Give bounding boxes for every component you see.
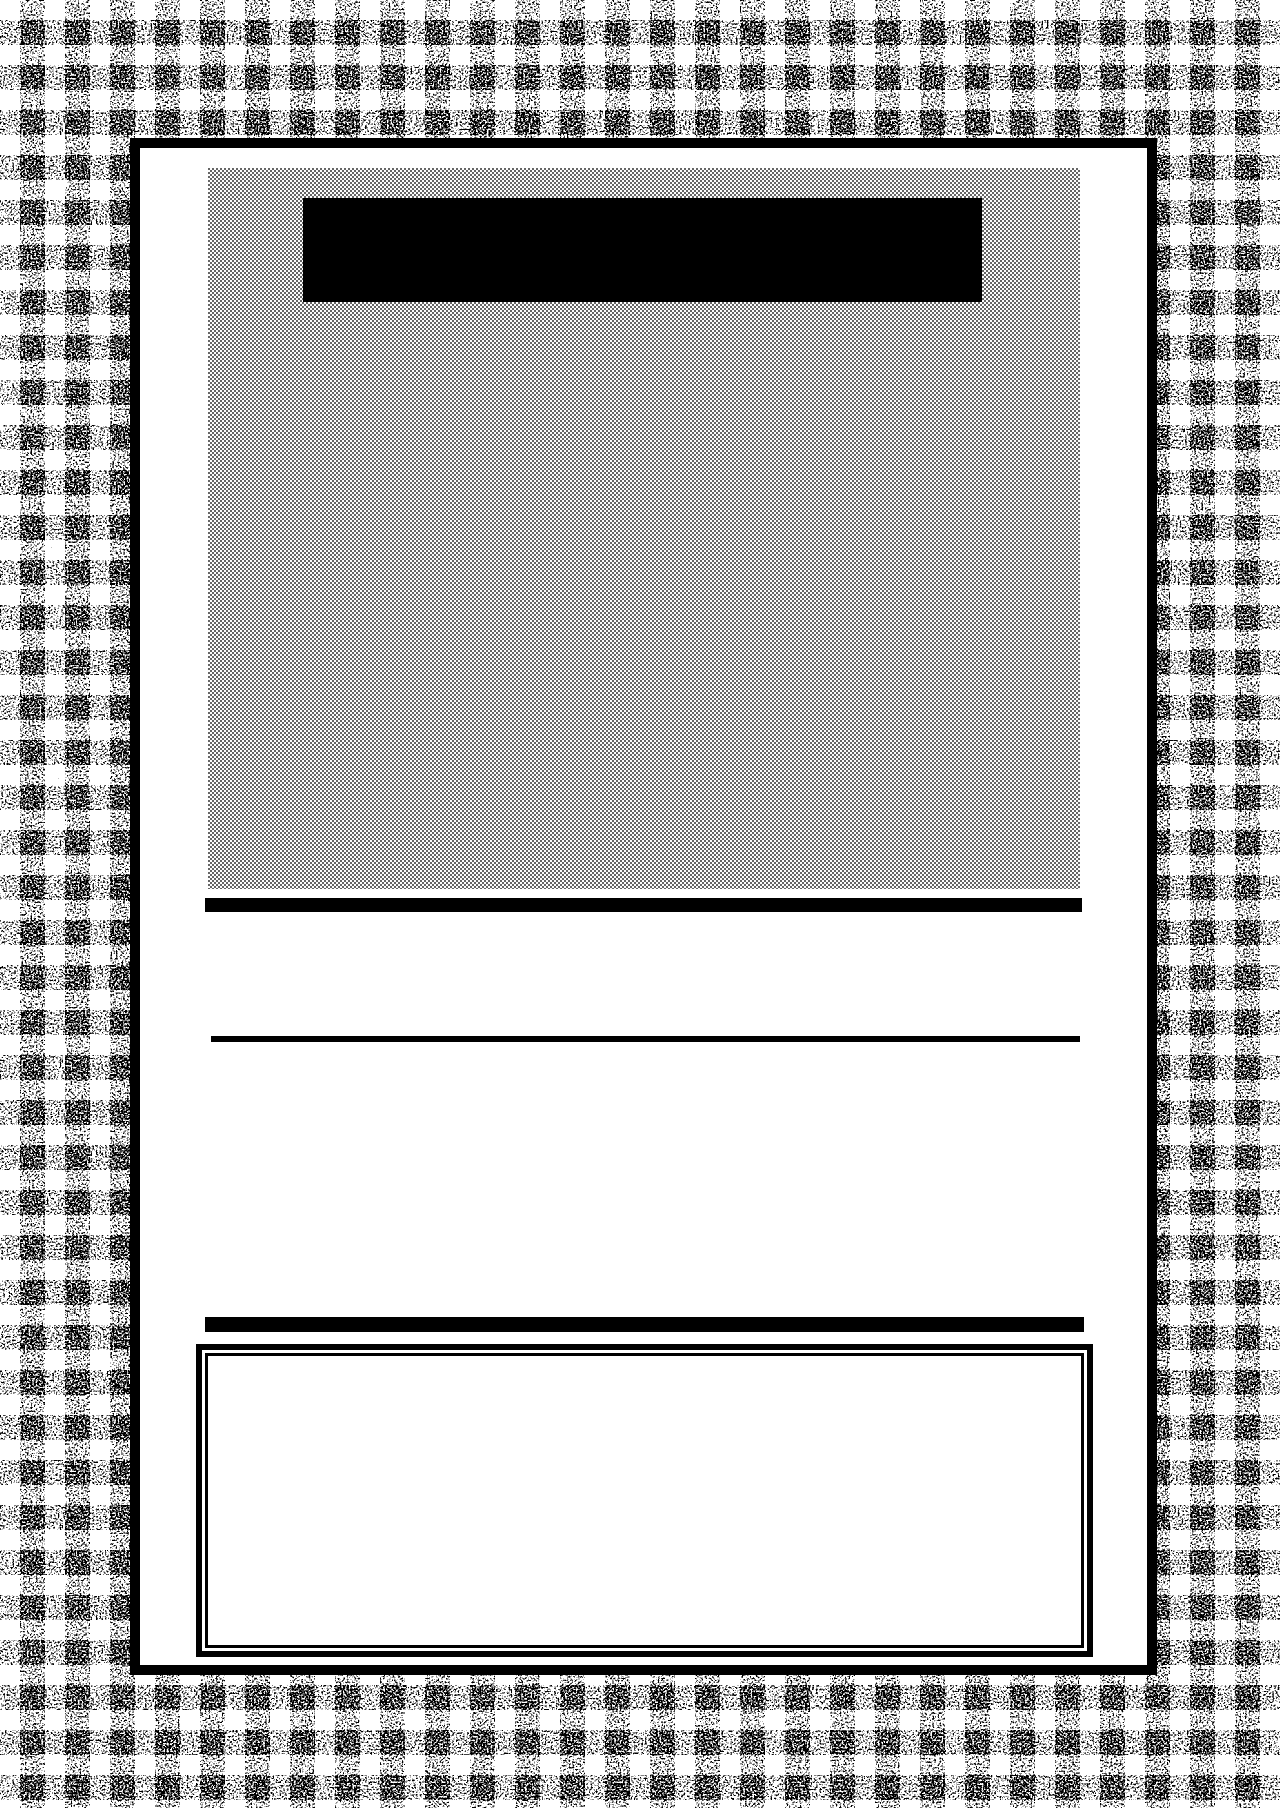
halftone-header-panel: [208, 168, 1080, 889]
double-border-box: [196, 1344, 1093, 1657]
thin-rule: [211, 1036, 1080, 1042]
thick-rule-bottom: [205, 1317, 1084, 1332]
thick-rule-top: [205, 898, 1082, 912]
double-border-box-inner: [205, 1353, 1084, 1648]
page-canvas: [0, 0, 1280, 1808]
redacted-title-block: [303, 198, 982, 302]
document-card: [130, 138, 1157, 1675]
